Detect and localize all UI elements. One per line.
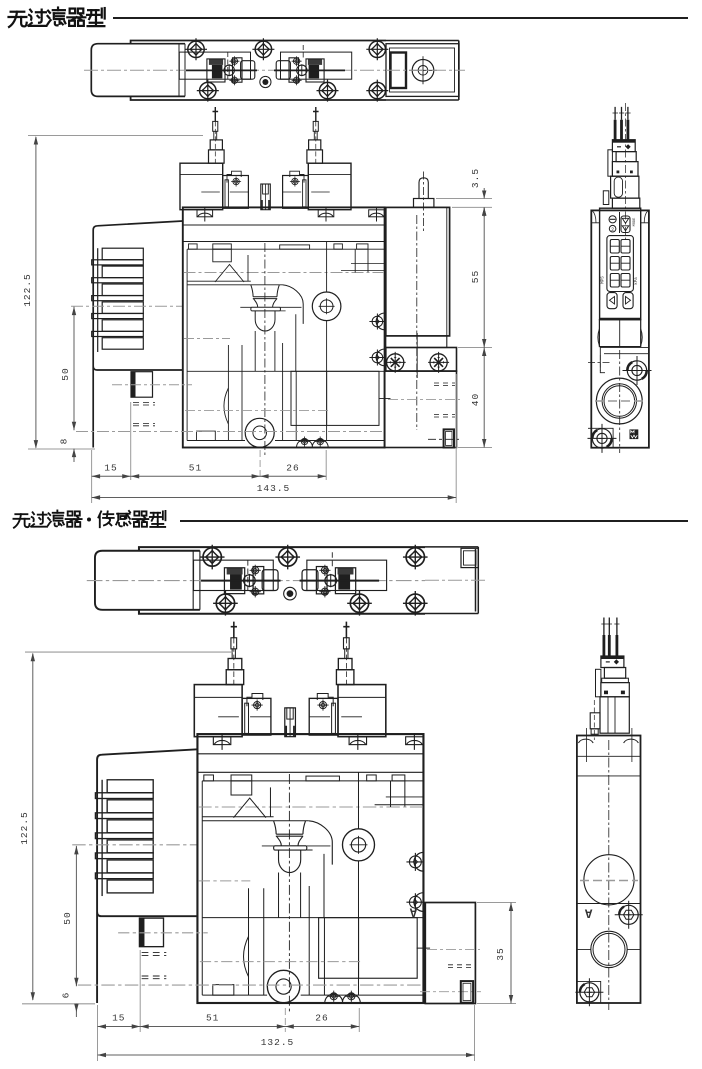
svg-text:MODE: MODE — [633, 218, 637, 227]
svg-text:A: A — [409, 905, 417, 919]
svg-text:40: 40 — [470, 393, 481, 406]
svg-text:132.5: 132.5 — [261, 1037, 295, 1048]
svg-text:51: 51 — [206, 1013, 219, 1024]
svg-text:122.5: 122.5 — [19, 811, 30, 845]
svg-text:A: A — [584, 905, 592, 919]
svg-text:26: 26 — [315, 1013, 328, 1024]
svg-text:51: 51 — [189, 463, 202, 474]
svg-text:55: 55 — [470, 270, 481, 283]
svg-text:122.5: 122.5 — [22, 273, 33, 307]
svg-text:2: 2 — [611, 227, 614, 233]
svg-text:6: 6 — [61, 992, 72, 999]
svg-text:3.5: 3.5 — [470, 168, 481, 188]
svg-text:MPS: MPS — [601, 276, 605, 284]
svg-text:15: 15 — [112, 1013, 125, 1024]
svg-text:26: 26 — [286, 463, 299, 474]
svg-text:15: 15 — [104, 463, 117, 474]
svg-text:50: 50 — [62, 911, 73, 924]
svg-text:8: 8 — [59, 438, 70, 445]
svg-text:143.5: 143.5 — [257, 483, 291, 494]
svg-text:kPa: kPa — [634, 277, 639, 285]
svg-text:50: 50 — [60, 367, 71, 380]
svg-text:35: 35 — [495, 947, 506, 960]
